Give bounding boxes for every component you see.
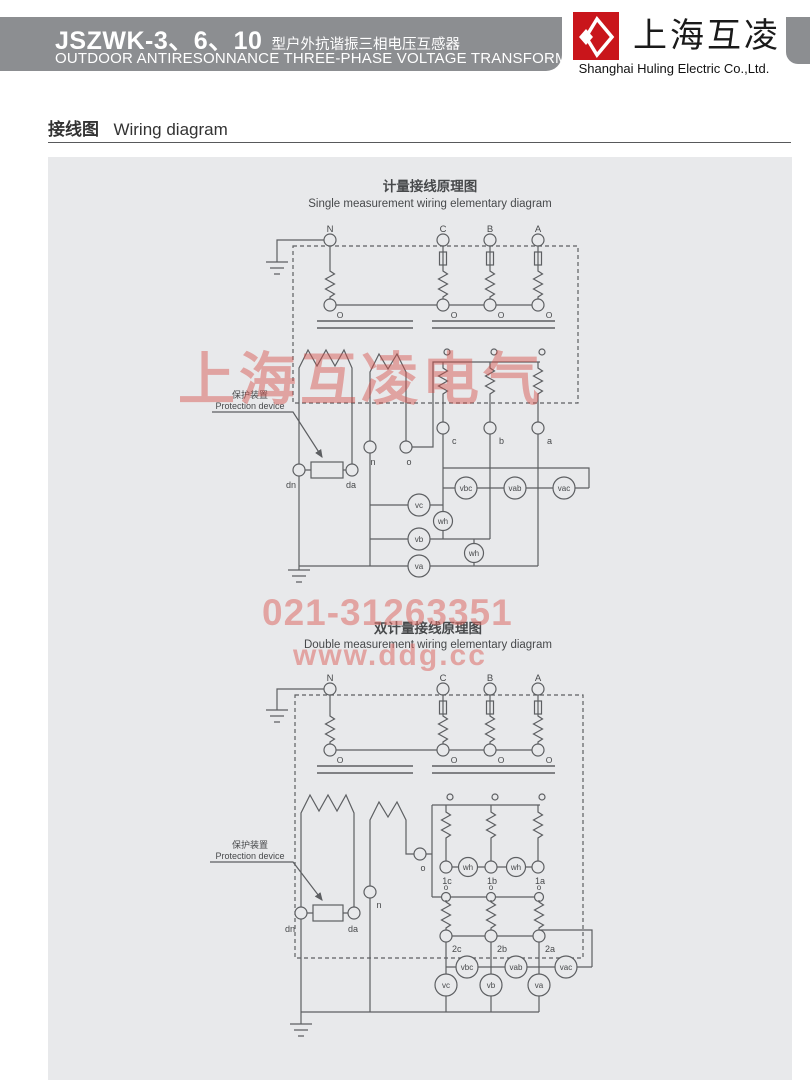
- terminal-b: b: [499, 436, 504, 446]
- header-corner-block: [786, 17, 810, 64]
- terminal-A: A: [535, 224, 542, 235]
- protection-pointer-arrow: [210, 862, 322, 900]
- diagram2-title-zh: 双计量接线原理图: [374, 620, 482, 636]
- terminal-c: c: [452, 436, 457, 446]
- section-title-zh: 接线图: [48, 120, 99, 139]
- terminal-o: o: [420, 863, 425, 873]
- polarity-O: O: [451, 755, 458, 765]
- polarity-O: O: [546, 755, 553, 765]
- terminal-B: B: [487, 224, 493, 235]
- meter-wh: wh: [468, 549, 479, 558]
- terminal-2a: 2a: [545, 944, 555, 954]
- ground-icon: [266, 710, 288, 722]
- polarity-o: o: [537, 883, 542, 892]
- double-measurement-diagram: 双计量接线原理图 Double measurement wiring eleme…: [210, 620, 592, 1036]
- logo-text: 上海互凌: [633, 12, 781, 60]
- terminal-n-circle: [364, 441, 376, 453]
- transformer-enclosure-dashed: [293, 246, 578, 403]
- secondary-windings: [412, 349, 545, 447]
- terminal-2c: 2c: [452, 944, 462, 954]
- protection-label-zh: 保护装置: [232, 839, 268, 850]
- protection-device: [210, 862, 360, 1036]
- ground-icon: [288, 570, 310, 582]
- terminal-dn: dn: [285, 924, 295, 934]
- section-title: 接线图 Wiring diagram: [48, 115, 228, 140]
- core-lines: [317, 766, 555, 773]
- meter-vbc: vbc: [461, 963, 473, 972]
- header-bar: JSZWK-3、6、10 型户外抗谐振三相电压互感器 OUTDOOR ANTIR…: [0, 17, 562, 71]
- core-lines: [317, 321, 555, 328]
- meters: [435, 956, 577, 996]
- polarity-o: o: [489, 883, 494, 892]
- company-name: Shanghai Huling Electric Co.,Ltd.: [556, 61, 792, 76]
- terminal-N: N: [327, 673, 334, 684]
- terminal-n: n: [370, 457, 375, 467]
- polarity-o: o: [444, 883, 449, 892]
- meter-vac: vac: [558, 484, 570, 493]
- product-subtitle: OUTDOOR ANTIRESONNANCE THREE-PHASE VOLTA…: [55, 50, 589, 67]
- protection-label-zh: 保护装置: [232, 389, 268, 400]
- open-delta-windings: [301, 795, 414, 907]
- single-measurement-diagram: 计量接线原理图 Single measurement wiring elemen…: [212, 178, 589, 582]
- terminal-da: da: [346, 480, 356, 490]
- ground-icon: [266, 262, 288, 274]
- terminal-o: o: [406, 457, 411, 467]
- terminal-N: N: [327, 224, 334, 235]
- polarity-O: O: [498, 310, 505, 320]
- polarity-O: O: [337, 310, 344, 320]
- terminal-A: A: [535, 673, 542, 684]
- terminal-n: n: [376, 900, 381, 910]
- terminal-da: da: [348, 924, 358, 934]
- terminal-n-circle: [364, 886, 376, 898]
- meter-vbc: vbc: [460, 484, 472, 493]
- protection-pointer-arrow: [212, 412, 322, 457]
- company-logo: 上海互凌: [573, 12, 781, 60]
- polarity-O: O: [451, 310, 458, 320]
- terminal-a: a: [547, 436, 552, 446]
- terminal-C: C: [440, 224, 447, 235]
- meter-wh: wh: [462, 863, 473, 872]
- diamond-logo-icon: [573, 12, 619, 60]
- metering-wiring: [288, 434, 589, 582]
- ground-icon: [290, 1024, 312, 1036]
- meters: [408, 477, 575, 577]
- terminal-o-circle: [400, 441, 412, 453]
- meter-vc: vc: [442, 981, 450, 990]
- meter-wh: wh: [510, 863, 521, 872]
- meter-wh: wh: [437, 517, 448, 526]
- terminal-dn: dn: [286, 480, 296, 490]
- polarity-O: O: [498, 755, 505, 765]
- meter-vc: vc: [415, 501, 423, 510]
- diagram2-title-en: Double measurement wiring elementary dia…: [304, 639, 552, 651]
- meter-vab: vab: [510, 963, 523, 972]
- terminal-C: C: [440, 673, 447, 684]
- protection-label-en: Protection device: [215, 851, 284, 861]
- meter-vb: vb: [487, 981, 496, 990]
- section-underline: [48, 142, 791, 143]
- terminal-B: B: [487, 673, 493, 684]
- meter-vac: vac: [560, 963, 572, 972]
- meter-va: va: [535, 981, 544, 990]
- terminal-o-circle: [414, 848, 426, 860]
- polarity-O: O: [546, 310, 553, 320]
- diagram1-title-en: Single measurement wiring elementary dia…: [308, 198, 552, 210]
- protection-label-en: Protection device: [215, 401, 284, 411]
- primary-wiring: [266, 683, 544, 756]
- terminal-2b: 2b: [497, 944, 507, 954]
- meter-vb: vb: [415, 535, 424, 544]
- diagram1-title-zh: 计量接线原理图: [383, 178, 478, 194]
- protection-device: [212, 412, 358, 478]
- section-title-en: Wiring diagram: [113, 120, 227, 139]
- meter-vab: vab: [509, 484, 522, 493]
- wiring-diagrams: 计量接线原理图 Single measurement wiring elemen…: [48, 157, 792, 1080]
- meter-va: va: [415, 562, 424, 571]
- polarity-O: O: [337, 755, 344, 765]
